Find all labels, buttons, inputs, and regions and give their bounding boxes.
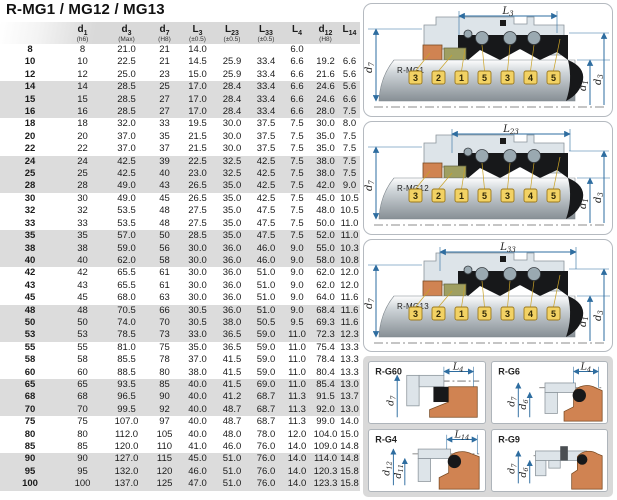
table-cell: 7.5 xyxy=(339,143,360,155)
table-cell: 15.0 xyxy=(181,69,214,81)
table-cell: 68 xyxy=(60,391,105,403)
table-cell: 99.0 xyxy=(312,416,339,428)
table-cell: 11.0 xyxy=(282,367,312,379)
table-cell: 25 xyxy=(148,81,181,93)
table-row: 101022.52114.525.933.46.619.26.6 xyxy=(0,56,360,68)
table-cell: 38 xyxy=(0,243,60,255)
dim-label-d6: d6 xyxy=(517,467,529,478)
page-title: R-MG1 / MG12 / MG13 xyxy=(6,1,165,18)
table-cell: 58 xyxy=(60,354,105,366)
part-number: 3 xyxy=(413,73,418,83)
table-cell: 10.5 xyxy=(339,193,360,205)
table-row: 656593.58540.041.569.011.085.413.0 xyxy=(0,379,360,391)
table-cell: 88.5 xyxy=(105,367,148,379)
table-cell: 78.0 xyxy=(250,429,282,441)
seal-face-section xyxy=(444,166,466,178)
table-cell: 30.5 xyxy=(181,317,214,329)
table-row: 282849.04326.535.042.57.542.09.0 xyxy=(0,180,360,192)
table-row: 303049.04526.535.042.57.545.010.5 xyxy=(0,193,360,205)
table-cell: 30.0 xyxy=(181,292,214,304)
table-cell: 76.0 xyxy=(250,466,282,478)
part-number: 3 xyxy=(413,191,418,201)
table-cell: 28 xyxy=(60,180,105,192)
table-cell: 36.0 xyxy=(214,280,250,292)
table-row: 707099.59240.048.768.711.392.013.0 xyxy=(0,404,360,416)
table-cell: 76.0 xyxy=(250,478,282,490)
table-cell: 70 xyxy=(148,317,181,329)
table-cell: 48 xyxy=(0,305,60,317)
gland-step xyxy=(548,461,559,469)
table-cell: 7.5 xyxy=(282,230,312,242)
table-cell: 14.5 xyxy=(181,56,214,68)
table-cell: 59.0 xyxy=(250,329,282,341)
table-cell: 15 xyxy=(60,94,105,106)
detail-panel-r-g6: L4 d7 d6 R-G6 xyxy=(491,361,609,424)
detail-panel-r-g60: L4 d7 R-G60 xyxy=(368,361,486,424)
dim-label-length: L23 xyxy=(502,124,519,136)
table-cell: 33 xyxy=(60,218,105,230)
table-cell: 21 xyxy=(148,44,181,56)
table-cell: 46.0 xyxy=(214,441,250,453)
table-cell: 30.0 xyxy=(181,255,214,267)
table-row: 161628.52717.028.433.46.628.07.5 xyxy=(0,106,360,118)
table-cell: 50.0 xyxy=(312,218,339,230)
table-cell: 35.0 xyxy=(312,143,339,155)
table-cell: 11.3 xyxy=(282,416,312,428)
table-cell: 48 xyxy=(60,305,105,317)
table-row: 454568.06330.036.051.09.064.011.6 xyxy=(0,292,360,304)
table-cell: 11.0 xyxy=(282,329,312,341)
table-cell: 30 xyxy=(0,193,60,205)
table-cell: 37.0 xyxy=(105,131,148,143)
part-number: 5 xyxy=(482,191,487,201)
table-cell: 47.5 xyxy=(250,218,282,230)
table-cell: 7.5 xyxy=(282,205,312,217)
table-cell: 35.0 xyxy=(214,218,250,230)
table-cell: 7.5 xyxy=(282,156,312,168)
table-cell: 18 xyxy=(60,118,105,130)
table-cell: 7.5 xyxy=(339,168,360,180)
table-cell: 49.0 xyxy=(105,180,148,192)
table-cell: 11.6 xyxy=(339,305,360,317)
spring-coil xyxy=(464,266,472,274)
table-cell xyxy=(250,44,282,56)
table-cell: 40.0 xyxy=(181,379,214,391)
r-g4-drawing: L14 d12 d11 R-G4 xyxy=(369,430,485,491)
table-cell: 14.0 xyxy=(282,441,312,453)
table-cell: 115 xyxy=(148,453,181,465)
table-cell: 55.0 xyxy=(312,243,339,255)
table-cell: 7.5 xyxy=(339,106,360,118)
r-g6-drawing: L4 d7 d6 R-G6 xyxy=(492,362,608,423)
table-cell: 53.5 xyxy=(105,218,148,230)
table-cell: 30.0 xyxy=(214,131,250,143)
table-cell: 110 xyxy=(148,441,181,453)
table-cell: 65 xyxy=(0,379,60,391)
table-cell: 62.0 xyxy=(105,255,148,267)
column-header: L14 xyxy=(339,22,360,44)
table-cell: 42 xyxy=(60,267,105,279)
table-cell: 48 xyxy=(148,205,181,217)
column-header: d12(H8) xyxy=(312,22,339,44)
table-cell: 68.7 xyxy=(250,416,282,428)
table-cell: 68.0 xyxy=(105,292,148,304)
table-cell: 13.7 xyxy=(339,391,360,403)
table-cell: 43 xyxy=(60,280,105,292)
table-cell: 9.0 xyxy=(282,267,312,279)
table-cell: 28.5 xyxy=(105,94,148,106)
table-cell: 76.0 xyxy=(250,453,282,465)
set-screw xyxy=(500,20,506,26)
table-cell: 19.5 xyxy=(181,118,214,130)
part-number: 3 xyxy=(505,191,510,201)
table-cell: 78 xyxy=(148,354,181,366)
table-cell: 33 xyxy=(148,118,181,130)
table-cell: 7.5 xyxy=(282,180,312,192)
table-cell: 11.6 xyxy=(339,292,360,304)
table-cell: 90 xyxy=(148,391,181,403)
table-cell: 70 xyxy=(60,404,105,416)
table-row: 141428.52517.028.433.46.624.65.6 xyxy=(0,81,360,93)
table-cell: 80 xyxy=(60,429,105,441)
table-cell: 85 xyxy=(60,441,105,453)
table-cell: 9.5 xyxy=(282,317,312,329)
table-cell: 36.0 xyxy=(214,255,250,267)
table-cell: 38 xyxy=(60,243,105,255)
table-cell: 97 xyxy=(148,416,181,428)
table-cell: 105 xyxy=(148,429,181,441)
table-row: 181832.03319.530.037.57.530.08.0 xyxy=(0,118,360,130)
table-cell: 21 xyxy=(148,56,181,68)
table-cell: 20 xyxy=(60,131,105,143)
table-cell: 42.5 xyxy=(105,156,148,168)
table-cell: 5.6 xyxy=(339,81,360,93)
table-cell: 37 xyxy=(148,143,181,155)
table-cell: 9.0 xyxy=(282,255,312,267)
table-cell: 9.0 xyxy=(339,180,360,192)
part-number: 1 xyxy=(459,309,464,319)
table-cell: 40.0 xyxy=(181,429,214,441)
table-cell: 14.8 xyxy=(339,453,360,465)
table-cell: 7.5 xyxy=(282,131,312,143)
table-cell: 109.0 xyxy=(312,441,339,453)
table-cell: 17.0 xyxy=(181,94,214,106)
diagram-r-mg12: R-MG123215345L23d7d1d3 xyxy=(363,121,613,235)
table-cell: 51.0 xyxy=(250,292,282,304)
spring-coil xyxy=(504,150,517,163)
table-cell: 45 xyxy=(0,292,60,304)
table-cell: 65.5 xyxy=(105,267,148,279)
table-cell: 21.6 xyxy=(312,69,339,81)
table-cell: 40.0 xyxy=(181,404,214,416)
dim-label-d3: d3 xyxy=(593,74,605,85)
table-cell: 21.5 xyxy=(181,131,214,143)
dim-label-d7: d7 xyxy=(506,463,518,474)
table-cell: 12.0 xyxy=(339,280,360,292)
table-cell: 11.3 xyxy=(282,404,312,416)
column-header: L33(±0.5) xyxy=(250,22,282,44)
table-cell: 28.4 xyxy=(214,94,250,106)
table-cell: 6.6 xyxy=(282,56,312,68)
table-cell: 27.5 xyxy=(181,205,214,217)
table-cell: 7.5 xyxy=(339,156,360,168)
detail-panel-r-g4: L14 d12 d11 R-G4 xyxy=(368,429,486,492)
dim-label-length: L3 xyxy=(501,6,514,18)
table-cell: 114.0 xyxy=(312,453,339,465)
table-cell: 68 xyxy=(0,391,60,403)
table-cell: 70.5 xyxy=(105,305,148,317)
r-g60-drawing: L4 d7 R-G60 xyxy=(369,362,485,423)
table-cell: 91.5 xyxy=(312,391,339,403)
table-cell: 100 xyxy=(0,478,60,490)
dim-label-d6: d6 xyxy=(517,399,529,410)
table-row: 353557.05028.535.047.57.552.011.0 xyxy=(0,230,360,242)
table-cell: 5.6 xyxy=(339,69,360,81)
table-cell: 28.0 xyxy=(312,106,339,118)
table-cell: 72.3 xyxy=(312,329,339,341)
table-cell: 24.6 xyxy=(312,94,339,106)
table-cell: 37.5 xyxy=(250,131,282,143)
table-cell: 80.4 xyxy=(312,367,339,379)
table-row: 505074.07030.538.050.59.569.311.6 xyxy=(0,317,360,329)
mg12-drawing: R-MG123215345L23d7d1d3 xyxy=(364,122,612,234)
table-cell: 73 xyxy=(148,329,181,341)
table-cell: 42 xyxy=(0,267,60,279)
table-cell: 10.3 xyxy=(339,243,360,255)
table-cell: 11.0 xyxy=(282,354,312,366)
table-cell: 42.0 xyxy=(312,180,339,192)
table-cell: 38.0 xyxy=(312,156,339,168)
table-row: 484870.56630.536.051.09.068.411.6 xyxy=(0,305,360,317)
table-cell: 10.5 xyxy=(339,205,360,217)
table-cell: 33 xyxy=(0,218,60,230)
table-cell: 23.0 xyxy=(181,168,214,180)
table-cell: 132.0 xyxy=(105,466,148,478)
table-cell: 28.4 xyxy=(214,81,250,93)
table-cell: 25.9 xyxy=(214,69,250,81)
table-cell: 23 xyxy=(148,69,181,81)
table-cell: 53.5 xyxy=(105,205,148,217)
table-cell: 35 xyxy=(0,230,60,242)
table-row: 686896.59040.041.268.711.391.513.7 xyxy=(0,391,360,403)
table-row: 9090127.011545.051.076.014.0114.014.8 xyxy=(0,453,360,465)
dim-label-length: L33 xyxy=(499,242,516,254)
table-cell: 6.6 xyxy=(282,106,312,118)
table-cell: 28.4 xyxy=(214,106,250,118)
table-cell: 42.5 xyxy=(105,168,148,180)
dim-label-d7: d7 xyxy=(385,395,397,406)
table-cell: 33.4 xyxy=(250,81,282,93)
table-cell: 85.5 xyxy=(105,354,148,366)
table-cell: 39 xyxy=(148,156,181,168)
table-cell: 17.0 xyxy=(181,81,214,93)
table-cell: 30.0 xyxy=(181,280,214,292)
part-number: 1 xyxy=(459,191,464,201)
table-cell: 69.0 xyxy=(250,379,282,391)
table-cell: 41.5 xyxy=(214,379,250,391)
table-cell: 9.0 xyxy=(282,280,312,292)
table-cell: 28.5 xyxy=(105,106,148,118)
dim-label-l4: L4 xyxy=(579,362,591,374)
table-cell: 13.0 xyxy=(339,379,360,391)
table-cell: 10 xyxy=(0,56,60,68)
table-cell: 137.0 xyxy=(105,478,148,490)
table-cell: 41.5 xyxy=(214,354,250,366)
detail-label: R-G4 xyxy=(375,434,397,444)
table-cell: 12 xyxy=(0,69,60,81)
elastomer-section xyxy=(433,387,448,402)
seal-face-section xyxy=(444,48,466,60)
table-cell: 81.0 xyxy=(105,342,148,354)
table-cell: 55 xyxy=(0,342,60,354)
table-cell: 35.0 xyxy=(214,193,250,205)
table-cell: 75.4 xyxy=(312,342,339,354)
table-cell: 78.5 xyxy=(105,329,148,341)
table-cell: 95 xyxy=(0,466,60,478)
table-cell: 11.0 xyxy=(282,342,312,354)
part-number: 4 xyxy=(528,309,533,319)
table-cell: 37.5 xyxy=(250,118,282,130)
table-cell: 15.0 xyxy=(339,429,360,441)
table-cell: 80 xyxy=(0,429,60,441)
table-cell: 8 xyxy=(0,44,60,56)
table-cell: 41.5 xyxy=(214,367,250,379)
table-cell: 104.0 xyxy=(312,429,339,441)
seal-face-section xyxy=(444,284,466,296)
table-cell: 43 xyxy=(148,180,181,192)
dim-label-d3: d3 xyxy=(593,192,605,203)
table-cell: 21.0 xyxy=(105,44,148,56)
table-row: 585885.57837.041.559.011.078.413.3 xyxy=(0,354,360,366)
table-cell: 50 xyxy=(60,317,105,329)
o-ring xyxy=(448,455,461,468)
table-cell: 66 xyxy=(148,305,181,317)
spring-coil xyxy=(504,32,517,45)
column-header: L3(±0.5) xyxy=(181,22,214,44)
table-cell: 53 xyxy=(60,329,105,341)
table-cell: 48.7 xyxy=(214,416,250,428)
table-cell: 6.6 xyxy=(339,56,360,68)
table-cell: 12 xyxy=(60,69,105,81)
table-cell: 37.0 xyxy=(181,354,214,366)
table-cell: 7.5 xyxy=(282,193,312,205)
table-cell: 12.0 xyxy=(339,267,360,279)
table-cell: 65 xyxy=(60,379,105,391)
table-cell: 7.5 xyxy=(282,168,312,180)
table-row: 8585120.011041.046.076.014.0109.014.8 xyxy=(0,441,360,453)
seat-detail-grid: L4 d7 R-G60 L4 d7 d6 xyxy=(363,356,613,497)
table-cell: 75 xyxy=(0,416,60,428)
dim-label-d7: d7 xyxy=(364,298,376,309)
table-cell: 14.0 xyxy=(339,416,360,428)
diagram-r-mg13: R-MG133215345L33d7d1d3 xyxy=(363,239,613,352)
table-cell: 14.0 xyxy=(282,478,312,490)
table-cell: 99.5 xyxy=(105,404,148,416)
gland-arm xyxy=(544,383,575,393)
table-cell: 55 xyxy=(60,342,105,354)
table-cell: 33.4 xyxy=(250,94,282,106)
detail-label: R-G6 xyxy=(498,366,520,376)
table-cell: 45.0 xyxy=(312,193,339,205)
table-row: 333353.54827.535.047.57.550.011.0 xyxy=(0,218,360,230)
table-row: 121225.02315.025.933.46.621.65.6 xyxy=(0,69,360,81)
table-cell: 25.9 xyxy=(214,56,250,68)
table-cell: 30.0 xyxy=(312,118,339,130)
gland-arm xyxy=(419,375,444,386)
detail-label: R-G9 xyxy=(498,434,520,444)
table-cell: 9.0 xyxy=(282,305,312,317)
table-cell: 33.0 xyxy=(181,329,214,341)
o-ring xyxy=(572,389,585,402)
table-row: 242442.53922.532.542.57.538.07.5 xyxy=(0,156,360,168)
table-row: 555581.07535.036.559.011.075.413.3 xyxy=(0,342,360,354)
table-cell: 62.0 xyxy=(312,267,339,279)
gland-section xyxy=(535,461,545,476)
table-cell: 13.0 xyxy=(339,404,360,416)
table-cell: 45 xyxy=(60,292,105,304)
spring-coil xyxy=(528,32,541,45)
table-cell: 112.0 xyxy=(105,429,148,441)
diagram-r-mg1: R-MG13215345L3d7d1d3 xyxy=(363,3,613,117)
clamp-section xyxy=(560,446,568,460)
dim-label-d3: d3 xyxy=(593,310,605,321)
spring-coil xyxy=(528,150,541,163)
spring-coil xyxy=(476,268,489,281)
part-number: 3 xyxy=(505,73,510,83)
table-cell: 85.4 xyxy=(312,379,339,391)
table-cell: 61 xyxy=(148,267,181,279)
table-cell: 41.0 xyxy=(181,441,214,453)
table-cell: 61 xyxy=(148,280,181,292)
gland-section xyxy=(544,393,556,414)
table-cell: 35.0 xyxy=(214,180,250,192)
table-cell: 40 xyxy=(60,255,105,267)
table-cell: 28.5 xyxy=(181,230,214,242)
table-row: 9595132.012046.051.076.014.0120.315.8 xyxy=(0,466,360,478)
part-number: 5 xyxy=(551,309,556,319)
table-cell: 9.0 xyxy=(282,292,312,304)
table-cell: 35.0 xyxy=(181,342,214,354)
table-cell: 107.0 xyxy=(105,416,148,428)
part-number: 2 xyxy=(436,191,441,201)
part-number: 3 xyxy=(413,309,418,319)
table-cell: 58 xyxy=(148,255,181,267)
table-cell: 30.0 xyxy=(214,143,250,155)
table-cell: 13.3 xyxy=(339,367,360,379)
spring-coil xyxy=(464,30,472,38)
table-row: 404062.05830.036.046.09.058.010.8 xyxy=(0,255,360,267)
table-cell: 51.0 xyxy=(214,466,250,478)
table-cell: 46.0 xyxy=(250,243,282,255)
table-row: 323253.54827.535.047.57.548.010.5 xyxy=(0,205,360,217)
table-cell: 100 xyxy=(60,478,105,490)
table-cell: 27 xyxy=(148,94,181,106)
table-cell: 36.0 xyxy=(214,243,250,255)
table-cell: 80 xyxy=(148,367,181,379)
table-cell: 51.0 xyxy=(250,267,282,279)
table-cell: 120.3 xyxy=(312,466,339,478)
table-cell: 48.0 xyxy=(214,429,250,441)
table-cell: 35.0 xyxy=(214,230,250,242)
dim-label-l14: L14 xyxy=(454,430,470,442)
table-cell: 14.0 xyxy=(282,453,312,465)
table-cell: 52.0 xyxy=(312,230,339,242)
table-cell: 18 xyxy=(0,118,60,130)
table-cell: 6.0 xyxy=(282,44,312,56)
table-row: 8821.02114.06.0 xyxy=(0,44,360,56)
column-header xyxy=(0,22,60,44)
column-header: d3(Max) xyxy=(105,22,148,44)
